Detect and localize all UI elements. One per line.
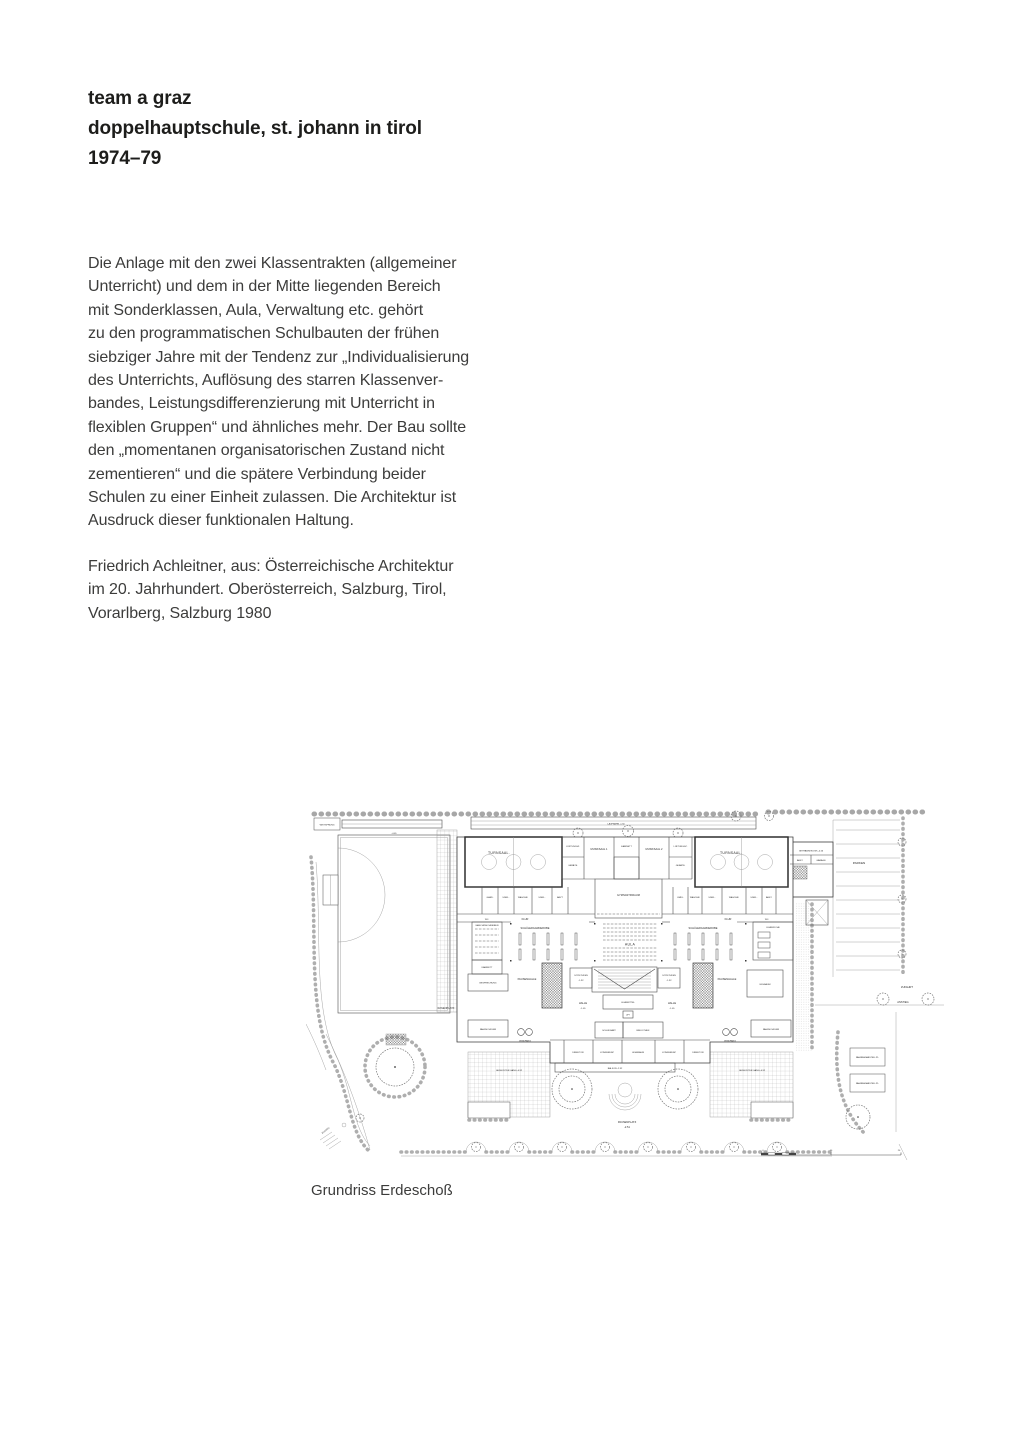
- plan-label-bibliothek: BIBLIOTHEK: [637, 1030, 650, 1032]
- plan-label-musiksaal1: MUSIKSAAL 1: [591, 847, 608, 851]
- plan-label-garderobe-l: SCHÜLERGARDEROBE: [521, 926, 550, 930]
- plan-label-sitzstufen-r: SITZSTUFEN: [662, 975, 676, 977]
- hedge-left: [311, 857, 368, 1150]
- plan-label-garage: GARAGE: [816, 859, 826, 862]
- plan-label-aula: AULA: [625, 943, 636, 947]
- citation-paragraph: Friedrich Achleitner, aus: Österreichisc…: [88, 555, 538, 625]
- scale-20: 20: [898, 1150, 901, 1152]
- plan-label-garderobe-r: SCHÜLERGARDEROBE: [689, 926, 718, 930]
- plan-label-kabinett-top: KABINETT: [621, 845, 632, 848]
- plan-label-schulwart: SCHULWART: [602, 1029, 616, 1032]
- plan-label-room-l3: UMKL.: [539, 897, 546, 899]
- figure-caption: Grundriss Erdeschoß: [311, 1182, 453, 1199]
- plan-label-essraum: ESSRAUM: [760, 983, 771, 986]
- plan-label-geraete-r: GERÄTE.: [676, 864, 686, 867]
- plan-label-level192-r: -1.92: [667, 980, 673, 982]
- building-footprint: [457, 837, 793, 1063]
- plan-label-fahrrad-2: FAHRRADABSTELLPL.: [856, 1082, 880, 1085]
- plan-label-pausenhalle-r: PAUSENHALLE: [718, 977, 737, 981]
- plan-label-room-r5: ABST.: [766, 896, 772, 899]
- parking-stalls: [836, 830, 900, 970]
- plan-label-lehrmittel: LEHRMITTEL: [621, 1002, 635, 1004]
- forecourt-trees: [552, 1069, 698, 1110]
- plan-label-laufbahn: LAUFBAHN -1.50: [607, 823, 625, 826]
- plan-label-konferenz-l: KONFERENZ: [600, 1052, 614, 1054]
- plan-label-level105-l: -1.05: [581, 1008, 587, 1010]
- floorplan-drawing: WEITSPRUNG -4.05 LAUFBAHN -1.50 RASENPLA…: [306, 802, 946, 1177]
- plan-label-abst: ABST.: [797, 859, 803, 862]
- plan-label-konferenz-r: KONFERENZ: [662, 1052, 676, 1054]
- plan-label-level192-l: -1.92: [579, 980, 585, 982]
- plan-label-parken: PARKEN: [853, 861, 866, 865]
- plan-label-kiosk: GETRÄNKEKIOSK -0.56: [799, 850, 824, 853]
- plan-label-direktor-r: DIREKTOR: [692, 1052, 704, 1054]
- plan-label-room-r2: UMKL.: [709, 897, 716, 899]
- plan-label-zufahrt: ZUFAHRT: [901, 985, 913, 989]
- plan-label-wc-r: WC.: [765, 919, 770, 921]
- plan-label-pausenhalle-l: PAUSENHALLE: [518, 977, 537, 981]
- plan-label-kabinett: KABINETT: [482, 966, 493, 969]
- plan-label-halle-l: HALLE: [579, 1001, 587, 1005]
- plan-label-lehrkueche: LEHRKÜCHE: [766, 926, 780, 929]
- plan-label-lueftung-l: LÜFTUNGSZ.: [566, 845, 580, 848]
- plan-label-gymnastikraum: GYMNASTIKRAUM: [617, 893, 640, 897]
- sports-field: [338, 835, 450, 1013]
- bottom-tree-row: [466, 1142, 787, 1152]
- plan-label-weitsprung: WEITSPRUNG: [320, 825, 335, 827]
- plan-label-room-r1: WASCHR.: [690, 896, 701, 899]
- body-paragraph: Die Anlage mit den zwei Klassentrakten (…: [88, 252, 538, 533]
- annex-hatch-room: [793, 866, 807, 879]
- rock: [342, 1123, 346, 1127]
- plan-label-flur-r: FLUR: [725, 917, 732, 921]
- plan-label-lueftung-r: LÜFTUNGSZ.: [674, 845, 688, 848]
- plan-label-level251: -2.51: [624, 1125, 630, 1129]
- title-line-author: team a graz: [88, 84, 422, 114]
- plan-label-besprechung: BESPRECHUNG: [480, 983, 497, 985]
- plan-label-zugang: ZUGANG: [321, 1126, 330, 1134]
- field-circle: [338, 848, 385, 942]
- stair-tower-left: [542, 963, 562, 1008]
- steps-hatch: [320, 1132, 341, 1149]
- plan-label-gang-l: GEDECKTER GANG -0.92: [496, 1069, 523, 1072]
- sports-field-inner: [341, 838, 448, 1011]
- porch-left: [468, 1102, 510, 1118]
- plan-label-anstieg: ANSTIEG: [897, 1000, 908, 1004]
- plan-label-windfang-l: WINDFANG: [519, 1040, 531, 1043]
- plan-label-fahrrad-1: FAHRRADABSTELLPL.: [856, 1056, 880, 1059]
- plan-label-turnsaal-right: TURNSAAL.: [720, 851, 742, 855]
- parking-area: PARKEN ZUFAHRT ANSTIEG FAHRRADABSTELLPL.…: [815, 818, 944, 1135]
- east-path: [795, 902, 812, 1052]
- plan-label-flur-l: FLUR: [522, 917, 529, 921]
- plan-label-turnsaal-left: TURNSAAL.: [488, 851, 510, 855]
- plan-label-room-l0: GARD.: [487, 896, 494, 899]
- title-line-years: 1974–79: [88, 144, 422, 174]
- title-line-project: doppelhauptschule, st. johann in tirol: [88, 114, 422, 144]
- plan-label-maschinschreiben: MASCHINSCHREIBEN: [476, 924, 499, 927]
- plan-label-halle-r: HALLE: [668, 1001, 676, 1005]
- scale-10: 10: [830, 1150, 833, 1152]
- plan-label-room-l1: UMKL.: [503, 897, 510, 899]
- scale-bar: 0 10 20: [761, 1144, 907, 1160]
- plan-label-fahrschueler-l: FAHRSCHÜLER: [480, 1028, 497, 1031]
- page-title: team a graz doppelhauptschule, st. johan…: [88, 84, 422, 174]
- plan-label-balkon: BALKON -2.32: [608, 1067, 623, 1070]
- plan-label-room-l4: ARZT: [557, 896, 563, 899]
- plan-label-leseraum: LESERAUM: [632, 1051, 644, 1054]
- plan-label-wc-l: WC.: [485, 919, 490, 921]
- plan-label-level105-r: -1.05: [670, 1008, 676, 1010]
- road-curve: [326, 1034, 370, 1150]
- plan-label-gang-r: GEDECKTER GANG -0.92: [739, 1069, 766, 1072]
- plan-label-room-r3: WASCHR.: [729, 896, 740, 899]
- bridge-hatch: [386, 1034, 406, 1045]
- west-paving-strip: [437, 830, 457, 1012]
- stair-tower-right: [693, 963, 713, 1008]
- plan-label-windfang-r: WINDFANG: [724, 1040, 736, 1043]
- plan-label-room-l2: WASCHR.: [518, 896, 529, 899]
- plan-label-pausenplatz: PAUSENPLATZ: [618, 1120, 637, 1124]
- plan-label-fahrschueler-r: FAHRSCHÜLER: [763, 1028, 780, 1031]
- plan-label-musiksaal2: MUSIKSAAL 2: [646, 847, 663, 851]
- plan-label-room-r4: UMKL.: [751, 897, 758, 899]
- plan-label-geraete-l: GERÄTE.: [568, 864, 578, 867]
- porch-right: [751, 1102, 793, 1118]
- plan-label-direktor-l: DIREKTOR: [572, 1052, 584, 1054]
- plan-label-room-r0: UMKL.: [677, 897, 684, 899]
- plan-label-sitzstufen-l: SITZSTUFEN: [574, 975, 588, 977]
